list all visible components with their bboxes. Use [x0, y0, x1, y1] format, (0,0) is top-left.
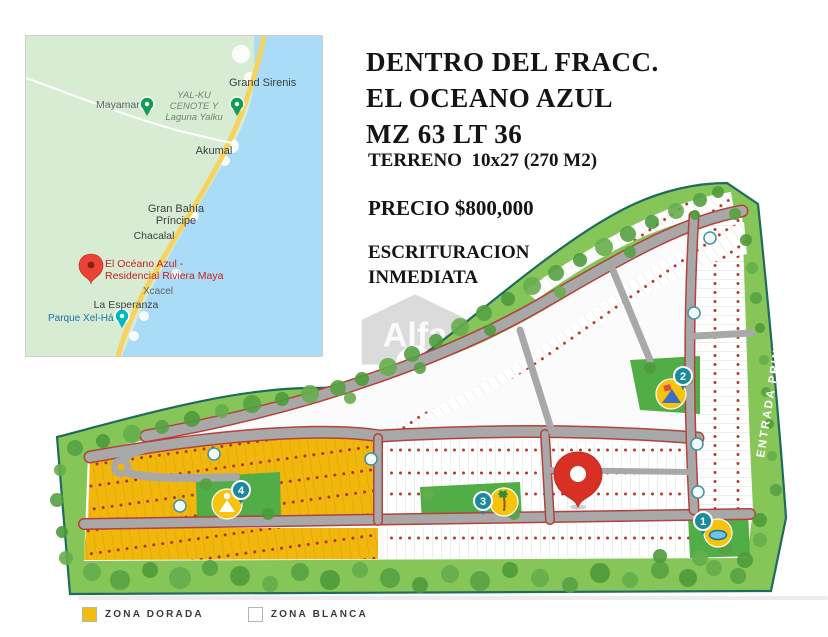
zona-blanca-label: ZONA BLANCA [271, 609, 368, 620]
title-line-2: EL OCEANO AZUL [366, 80, 746, 116]
zona-dorada-label: ZONA DORADA [105, 609, 204, 620]
title-line-1: DENTRO DEL FRACC. [366, 44, 746, 80]
svg-text:4: 4 [238, 485, 245, 497]
svg-text:3: 3 [480, 496, 486, 508]
bottom-divider [78, 596, 828, 600]
legend: ZONA DORADA ZONA BLANCA [82, 607, 368, 622]
zona-blanca-swatch [248, 607, 263, 622]
pool-icon [710, 531, 727, 540]
legend-item-zona-blanca: ZONA BLANCA [248, 607, 368, 622]
svg-text:2: 2 [680, 371, 686, 383]
svg-text:CENOTE Y: CENOTE Y [170, 101, 219, 112]
title-line-3: MZ 63 LT 36 [366, 116, 746, 152]
svg-text:1: 1 [700, 516, 706, 528]
site-plan: ENTRADA PRINCIPAL 1 2 3 [0, 150, 828, 610]
label-grand-sirenis: Grand Sirenis [229, 77, 297, 89]
yoga-icon [224, 493, 230, 499]
zona-dorada-bottom-row [84, 528, 378, 560]
legend-item-zona-dorada: ZONA DORADA [82, 607, 204, 622]
label-mayamar: Mayamar [96, 99, 140, 111]
svg-text:Laguna Yalku: Laguna Yalku [165, 112, 223, 123]
svg-text:YAL-KU: YAL-KU [177, 90, 211, 101]
property-title: DENTRO DEL FRACC. EL OCEANO AZUL MZ 63 L… [366, 44, 746, 152]
amenity-3-palm [490, 488, 518, 516]
zona-dorada-swatch [82, 607, 97, 622]
flyer-page: { "header": { "title_line1": "DENTRO DEL… [0, 0, 828, 637]
